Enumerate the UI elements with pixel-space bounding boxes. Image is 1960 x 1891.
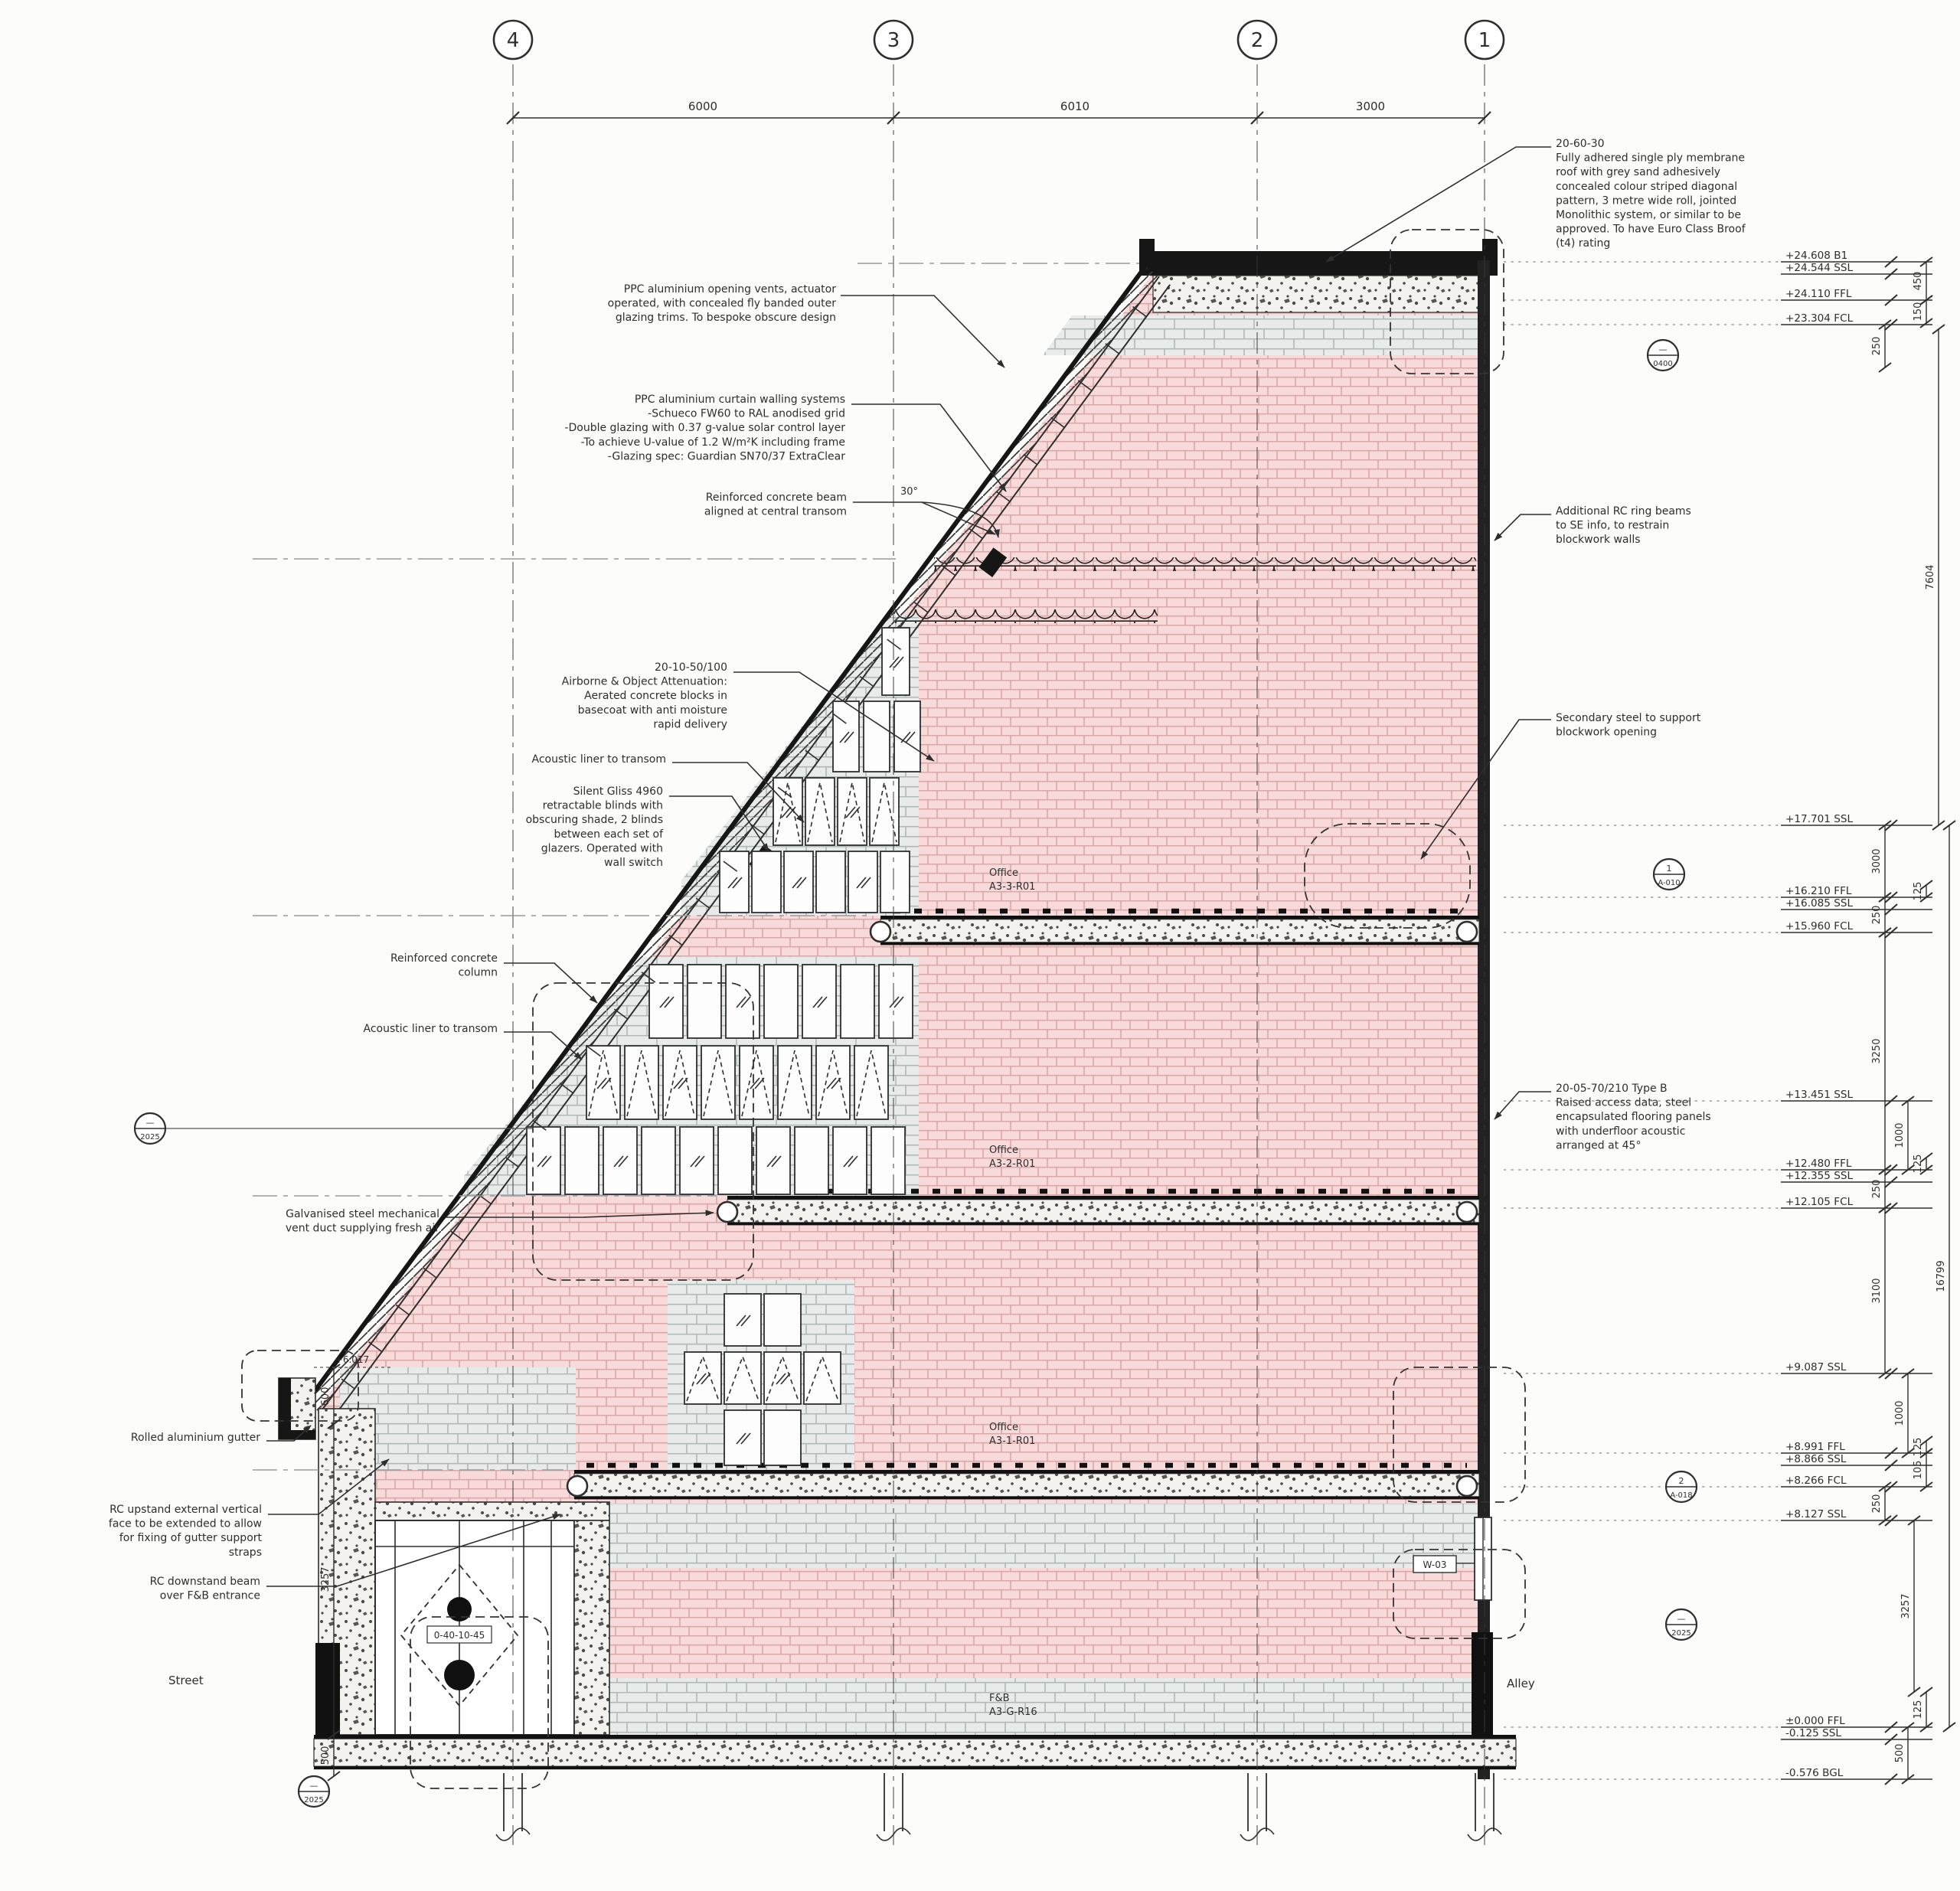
ref-marker-bottom: 2025 [1671, 1629, 1690, 1638]
vdim-label: 125 [1913, 1438, 1924, 1457]
dim-3000: 3000 [1356, 100, 1385, 113]
note-line: RC downstand beam [150, 1576, 260, 1588]
note-line: rapid delivery [653, 718, 727, 730]
window [642, 1127, 675, 1194]
note-line: Raised access data, steel [1556, 1097, 1691, 1109]
window [764, 1294, 801, 1346]
drawing-sheet: W-03 0-40-10-45 [0, 0, 1960, 1891]
window [764, 1410, 801, 1465]
level-label: +8.127 SSL [1785, 1508, 1847, 1520]
window [804, 1352, 841, 1404]
note-line: obscuring shade, 2 blinds [526, 814, 663, 826]
note-line: aligned at central transom [704, 506, 847, 518]
note-line: glazers. Operated with [541, 842, 663, 854]
window [854, 1046, 888, 1119]
vdim-label: 250 [1871, 1494, 1883, 1514]
level-label: +23.304 FCL [1785, 312, 1854, 325]
room-1-name: Office [989, 867, 1018, 879]
leader-line [1326, 147, 1551, 262]
ref-marker-top: — [1659, 345, 1668, 354]
window [833, 1127, 867, 1194]
vdim-label: 250 [1871, 1180, 1883, 1199]
note-line: 20-05-70/210 Type B [1556, 1083, 1668, 1095]
note-line: Reinforced concrete [390, 952, 498, 965]
window [802, 965, 836, 1038]
window [841, 965, 874, 1038]
note-line: Rolled aluminium gutter [131, 1432, 260, 1444]
room-3-ref: A3-1-R01 [989, 1435, 1035, 1447]
grid-bubble-3-label: 3 [887, 29, 900, 52]
note-line: column [458, 967, 498, 979]
note-line: vent duct supplying fresh air [286, 1223, 439, 1235]
leader-line [841, 296, 1004, 367]
note-line: Additional RC ring beams [1556, 505, 1691, 518]
note-line: Acoustic liner to transom [532, 753, 666, 766]
room-2-ref: A3-2-R01 [989, 1158, 1035, 1170]
ref-marker-top: — [310, 1781, 318, 1791]
note-line: retractable blinds with [543, 800, 663, 812]
window [784, 851, 813, 913]
window [848, 851, 877, 913]
window [649, 965, 683, 1038]
level-label: +13.451 SSL [1785, 1089, 1854, 1101]
note-line: Secondary steel to support [1556, 712, 1701, 724]
window [724, 1410, 761, 1465]
vdim-label: 16799 [1935, 1260, 1947, 1292]
note-line: arranged at 45° [1556, 1139, 1641, 1151]
note-line: Fully adhered single ply membrane [1556, 152, 1745, 165]
roof-deck-screed [1153, 276, 1479, 312]
window [778, 1046, 812, 1119]
note-line: to SE info, to restrain [1556, 520, 1669, 532]
level-label: +8.266 FCL [1785, 1475, 1847, 1487]
window [764, 1352, 801, 1404]
door-tag: W-03 [1423, 1560, 1447, 1570]
ref-marker-top: 2 [1679, 1476, 1684, 1486]
note-line: face to be extended to allow [109, 1518, 262, 1530]
level-label: +12.105 FCL [1785, 1196, 1854, 1208]
ref-marker-top: — [146, 1118, 155, 1128]
window [684, 1352, 721, 1404]
note-line: Reinforced concrete beam [706, 492, 847, 504]
window [701, 1046, 735, 1119]
window [527, 1127, 560, 1194]
note-line: concealed colour striped diagonal [1556, 181, 1737, 193]
grid-bubble-1-label: 1 [1478, 29, 1491, 52]
level-label: +12.480 FFL [1785, 1158, 1852, 1170]
window [871, 1127, 905, 1194]
window [764, 965, 798, 1038]
grid-bubbles: 4 3 2 1 [494, 21, 1504, 59]
window [752, 851, 781, 913]
level-label: +24.608 B1 [1785, 250, 1847, 262]
roof-membrane [1142, 251, 1498, 276]
note-line: Aerated concrete blocks in [584, 690, 727, 702]
level-label: +12.355 SSL [1785, 1170, 1854, 1182]
window [833, 701, 859, 772]
window [756, 1127, 790, 1194]
angle-label: 30° [900, 486, 918, 498]
note-line: approved. To have Euro Class Broof [1556, 224, 1746, 236]
blockwork-fb-upper [609, 1504, 1479, 1568]
note-line: (t4) rating [1556, 237, 1610, 250]
leader-line [1494, 514, 1551, 541]
level-label: +8.991 FFL [1785, 1441, 1845, 1453]
level-label: +16.085 SSL [1785, 897, 1854, 910]
window [894, 701, 920, 772]
room-2-name: Office [989, 1145, 1018, 1156]
level-label: -0.125 SSL [1785, 1727, 1841, 1739]
note-line: roof with grey sand adhesively [1556, 166, 1720, 178]
vdim-label: 3100 [1871, 1278, 1883, 1303]
vdim-label: 3257 [1900, 1593, 1912, 1618]
note-line: operated, with concealed fly banded oute… [608, 298, 837, 310]
window [565, 1127, 599, 1194]
note-line: basecoat with anti moisture [578, 704, 727, 717]
right-wall-base [1472, 1632, 1493, 1739]
vdim-label: 125 [1913, 1155, 1924, 1174]
room-3-name: Office [989, 1422, 1018, 1433]
note-line: Monolithic system, or similar to be [1556, 209, 1741, 221]
vdim-label: 125 [1913, 882, 1924, 901]
alley-label: Alley [1507, 1677, 1535, 1690]
window [879, 965, 913, 1038]
leader-line [851, 404, 1006, 492]
level-label: -0.576 BGL [1785, 1767, 1844, 1779]
room-4-ref: A3-G-R16 [989, 1706, 1037, 1718]
vdim-label: 3250 [1871, 1038, 1883, 1063]
level-label: +24.544 SSL [1785, 262, 1854, 274]
revolving-door-top [447, 1597, 472, 1622]
level-label: +16.210 FFL [1785, 885, 1852, 897]
note-line: 20-10-50/100 [655, 661, 727, 674]
ref-marker-top: 1 [1667, 864, 1672, 874]
note-line: Galvanised steel mechanical [286, 1208, 439, 1220]
window [688, 965, 721, 1038]
grid-bubble-2-label: 2 [1251, 29, 1264, 52]
note-line: blockwork walls [1556, 534, 1641, 546]
window [816, 851, 845, 913]
note-line: 20-60-30 [1556, 138, 1605, 150]
note-line: with underfloor acoustic [1556, 1125, 1685, 1138]
leader-line [504, 963, 597, 1003]
window [603, 1127, 637, 1194]
note-line: glazing trims. To bespoke obscure design [616, 312, 836, 324]
note-line: straps [229, 1546, 262, 1559]
vdim-label: 600 [320, 1387, 332, 1406]
note-line: -Schueco FW60 to RAL anodised grid [648, 408, 845, 420]
vdim-label: 250 [1871, 906, 1883, 925]
entrance-right-jamb [574, 1520, 609, 1735]
level-label: +24.110 FFL [1785, 288, 1852, 300]
slab-level-2 [717, 1191, 1479, 1225]
section-drawing: W-03 0-40-10-45 [0, 0, 1960, 1891]
window [586, 1046, 620, 1119]
vdim-label: 250 [1871, 337, 1883, 356]
ref-marker-bottom: 2025 [140, 1133, 159, 1141]
window [864, 701, 890, 772]
vdim-label: 7604 [1925, 564, 1936, 590]
leader-line [1494, 1092, 1551, 1119]
grid-bubble-4-label: 4 [507, 29, 520, 52]
revolving-door-bottom [444, 1660, 475, 1690]
note-line: -To achieve U-value of 1.2 W/m²K includi… [581, 436, 845, 449]
note-line: -Double glazing with 0.37 g-value solar … [564, 422, 845, 434]
ref-marker-bottom: 2025 [304, 1796, 323, 1804]
note-line: for fixing of gutter support [119, 1532, 263, 1544]
dim-6000: 6000 [688, 100, 717, 113]
note-line: Acoustic liner to transom [364, 1023, 498, 1035]
festoon-strip-2 [894, 609, 1158, 623]
note-line: pattern, 3 metre wide roll, jointed [1556, 194, 1736, 207]
ref-marker-top: — [1677, 1614, 1686, 1624]
level-label: +15.960 FCL [1785, 920, 1854, 932]
entrance-header-beam [375, 1502, 609, 1520]
blockwork-fb-lower [609, 1678, 1479, 1735]
left-wall-base [315, 1643, 340, 1738]
top-dimension-string: 6000 6010 3000 [507, 100, 1491, 124]
note-line: RC upstand external vertical [109, 1504, 262, 1516]
note-line: PPC aluminium curtain walling systems [635, 394, 845, 406]
gutter-level-label: +6.017 [335, 1354, 369, 1365]
note-line: encapsulated flooring panels [1556, 1111, 1711, 1123]
note-line: blockwork opening [1556, 727, 1657, 739]
room-4-name: F&B [989, 1693, 1010, 1704]
window [680, 1127, 714, 1194]
vdim-label: 125 [1913, 1700, 1924, 1720]
window [625, 1046, 658, 1119]
ground-slab [314, 1735, 1516, 1769]
vdim-label: 1000 [1894, 1122, 1906, 1148]
vdim-label: 3000 [1871, 848, 1883, 874]
note-line: over F&B entrance [160, 1590, 260, 1602]
note-line: -Glazing spec: Guardian SN70/37 ExtraCle… [608, 450, 845, 462]
window [816, 1046, 850, 1119]
vdim-label: 1000 [1894, 1400, 1906, 1426]
note-line: Silent Gliss 4960 [573, 785, 663, 798]
slab-level-3 [871, 911, 1479, 945]
vdim-label: 150 [1913, 302, 1924, 322]
dim-6010: 6010 [1060, 100, 1089, 113]
street-label: Street [168, 1674, 204, 1687]
vdim-label: 3257 [320, 1566, 332, 1592]
vdim-label: 450 [1913, 272, 1924, 291]
window [882, 628, 910, 695]
ref-marker-bottom: A-018 [1670, 1491, 1692, 1500]
note-line: Airborne & Object Attenuation: [562, 676, 727, 688]
ref-marker-bottom: 0400 [1653, 360, 1672, 368]
room-1-ref: A3-3-R01 [989, 881, 1035, 893]
festoon-strip-1 [934, 557, 1476, 571]
level-label: ±0.000 FFL [1785, 1715, 1845, 1727]
level-label: +9.087 SSL [1785, 1361, 1847, 1373]
vdim-label: 500 [320, 1746, 332, 1765]
window [724, 1352, 761, 1404]
window [663, 1046, 697, 1119]
note-line: between each set of [554, 828, 664, 841]
level-label: +17.701 SSL [1785, 813, 1854, 825]
level-label: +8.866 SSL [1785, 1453, 1847, 1465]
vdim-label: 500 [1894, 1744, 1906, 1763]
note-line: wall switch [604, 857, 663, 869]
window [880, 851, 910, 913]
window [740, 1046, 773, 1119]
slab-level-1 [567, 1465, 1479, 1499]
window [724, 1294, 761, 1346]
ref-marker-bottom: A-010 [1658, 879, 1680, 887]
window [795, 1127, 828, 1194]
vdim-label: 105 [1913, 1461, 1924, 1480]
window [726, 965, 759, 1038]
window [718, 1127, 752, 1194]
note-line: PPC aluminium opening vents, actuator [624, 283, 836, 296]
window [720, 851, 749, 913]
entrance-tag: 0-40-10-45 [434, 1630, 485, 1641]
